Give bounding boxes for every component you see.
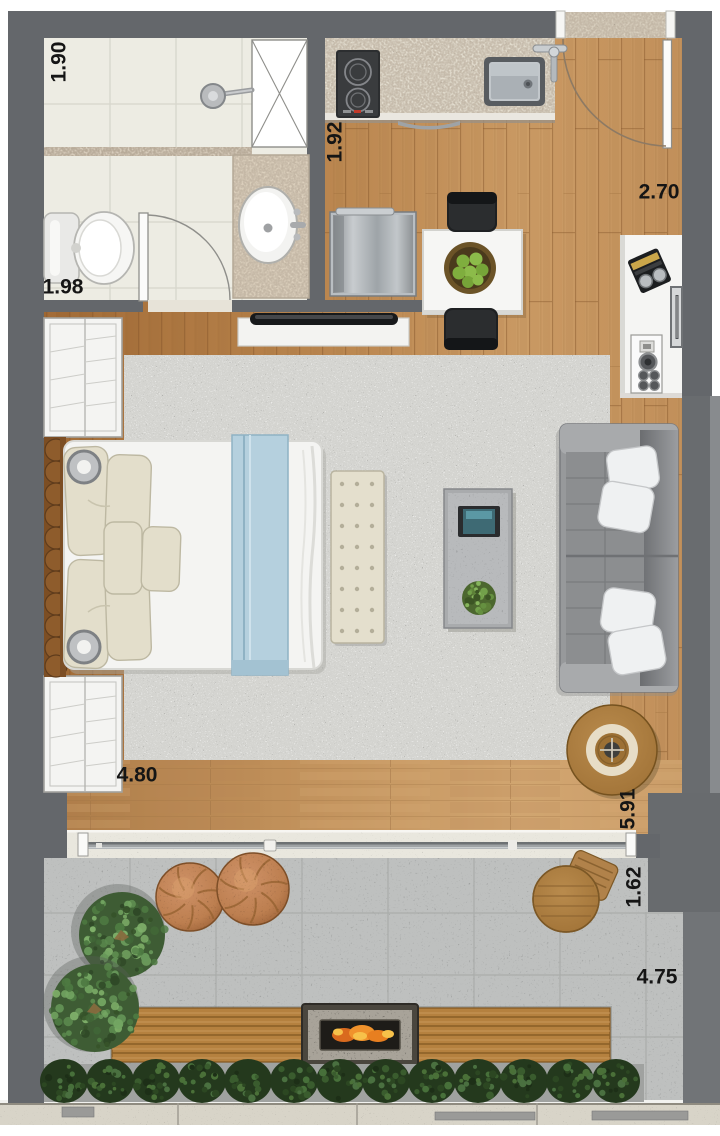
svg-text:2.70: 2.70 xyxy=(639,181,680,204)
svg-text:1.62: 1.62 xyxy=(623,867,646,908)
svg-text:1.92: 1.92 xyxy=(324,122,347,163)
svg-text:4.75: 4.75 xyxy=(637,966,678,989)
svg-text:4.80: 4.80 xyxy=(117,764,158,787)
svg-text:1.98: 1.98 xyxy=(43,276,84,299)
svg-text:1.90: 1.90 xyxy=(48,42,71,83)
svg-text:5.91: 5.91 xyxy=(617,788,640,829)
